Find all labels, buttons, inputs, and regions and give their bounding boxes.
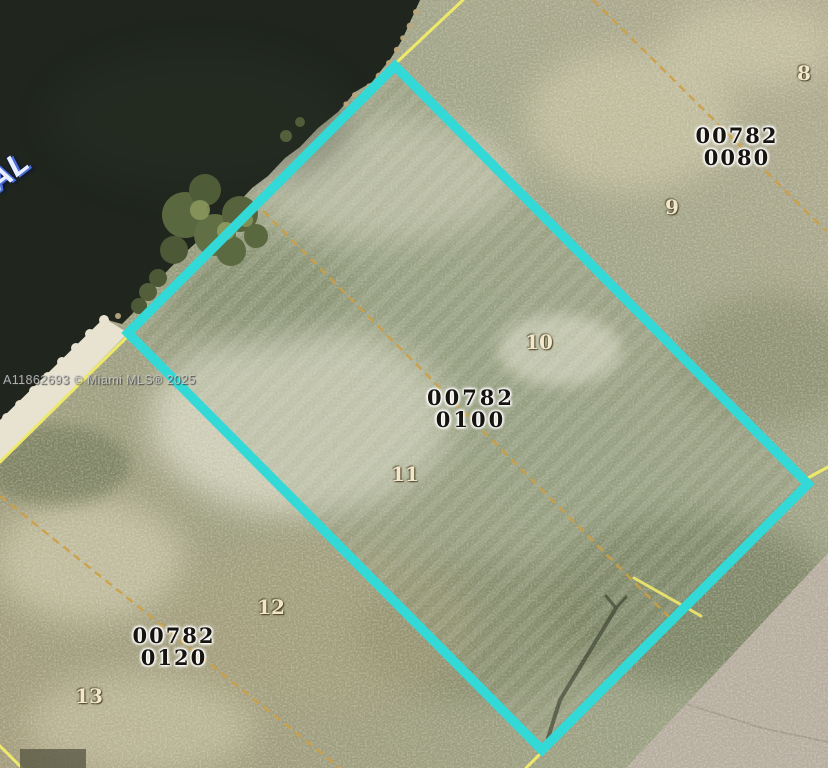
lot-number-label: 11 xyxy=(391,462,419,486)
parcel-id-line: 0080 xyxy=(695,147,778,169)
lot-number-label: 10 xyxy=(525,330,553,354)
water-sheen xyxy=(50,50,350,190)
parcel-id-line: 00782 xyxy=(695,125,778,147)
lot-number-label: 9 xyxy=(665,195,679,219)
parcel-id-label: 00782 0120 xyxy=(132,625,215,669)
parcel-id-line: 00782 xyxy=(427,387,515,409)
parcel-id-label: 00782 0080 xyxy=(695,125,778,169)
lot-number-label: 8 xyxy=(797,61,811,85)
parcel-id-line: 0100 xyxy=(427,409,515,431)
aerial-map: AL A11862693 © Miami MLS® 2025 00782 008… xyxy=(0,0,828,768)
parcel-id-label: 00782 0100 xyxy=(427,387,515,431)
lot-number-label: 12 xyxy=(257,595,285,619)
corner-shadow xyxy=(20,749,86,768)
lot-number-label: 13 xyxy=(75,684,103,708)
parcel-id-line: 0120 xyxy=(132,647,215,669)
mls-watermark: A11862693 © Miami MLS® 2025 xyxy=(3,373,196,387)
parcel-id-line: 00782 xyxy=(132,625,215,647)
